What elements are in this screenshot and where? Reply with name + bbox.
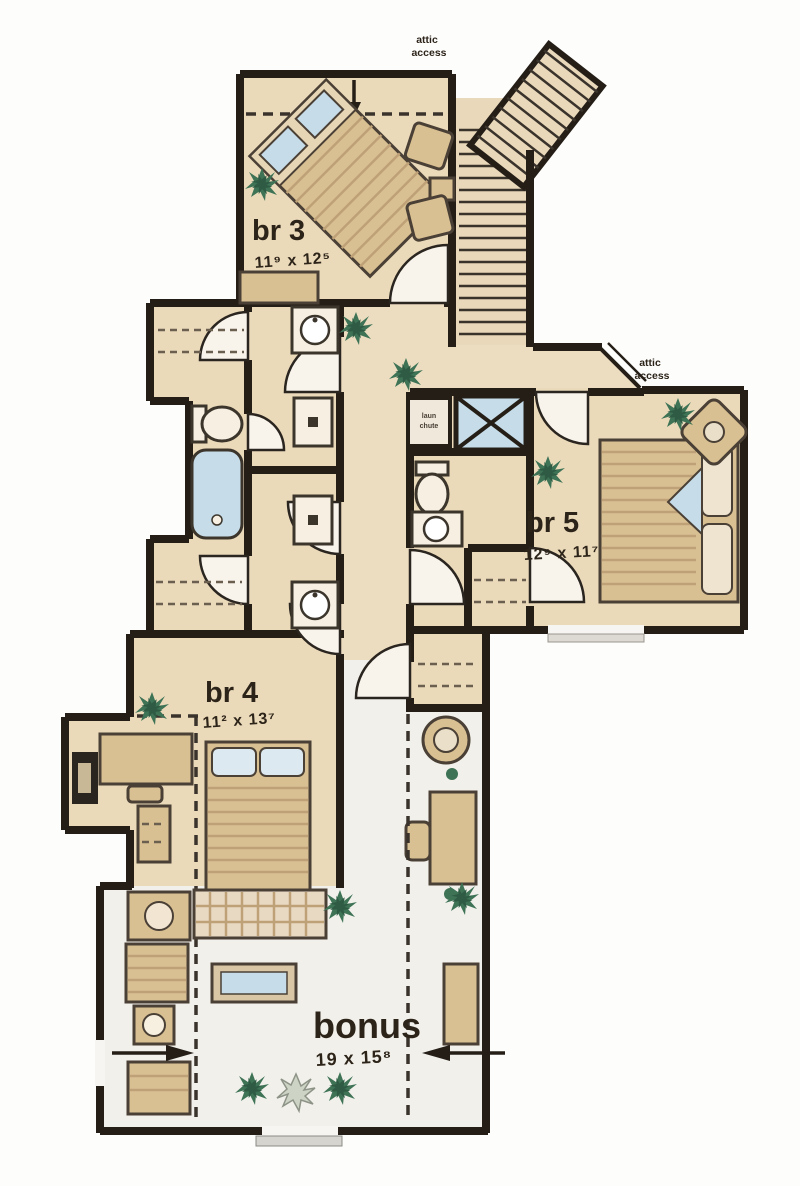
room-label-br5: br 5	[526, 507, 579, 539]
chute-label-2: chute	[420, 423, 439, 430]
lamp-table-icon	[134, 1006, 174, 1044]
linen-cabinet-icon	[294, 496, 332, 544]
pillow-icon	[212, 748, 256, 776]
pillow-icon	[702, 524, 732, 594]
attic-access-top-label-1: attic	[416, 34, 438, 46]
chair-icon	[406, 195, 454, 242]
window	[262, 1126, 338, 1136]
room-label-bonus: bonus	[313, 1005, 421, 1046]
toilet-icon	[416, 462, 448, 514]
dresser-icon	[240, 272, 318, 303]
window-sill	[548, 634, 644, 642]
linen-cabinet-icon	[294, 398, 332, 446]
window-seat	[72, 752, 98, 804]
toilet-icon	[192, 406, 242, 442]
attic-access-right-label-2: access	[634, 370, 669, 382]
room-label-br3: br 3	[252, 215, 305, 247]
vanity-sink-icon	[292, 582, 338, 628]
bed-icon	[206, 742, 310, 890]
desk-chair-icon	[128, 786, 162, 802]
window-sill	[256, 1136, 342, 1146]
laundry-chute-box: laun chute	[408, 398, 450, 446]
cabinet-icon	[444, 964, 478, 1044]
plant-icon	[446, 768, 458, 780]
desk-icon	[100, 734, 192, 784]
vanity-sink-icon	[292, 307, 338, 353]
recliner-icon	[126, 944, 188, 1002]
window	[95, 1040, 105, 1086]
desk-icon	[430, 792, 476, 884]
dresser-icon	[138, 806, 170, 862]
floor-plan-svg: br 3 11⁹ x 12⁵	[0, 0, 800, 1186]
room-dims-bonus: 19 x 15⁸	[315, 1046, 393, 1070]
coffee-table-icon	[212, 964, 296, 1002]
armchair-icon	[128, 892, 190, 940]
room-label-br4: br 4	[205, 677, 258, 709]
chute-label-1: laun	[422, 413, 436, 420]
sofa-icon	[194, 890, 326, 938]
attic-access-right-label-1: attic	[639, 357, 661, 369]
sink-icon	[412, 512, 462, 546]
attic-access-top-label-2: access	[411, 47, 446, 59]
pillow-icon	[260, 748, 304, 776]
floor-arm-closet	[410, 630, 486, 708]
round-chair-icon	[423, 717, 469, 763]
shower-icon	[456, 396, 526, 450]
floor-landing	[408, 345, 602, 392]
floor-plan-image: br 3 11⁹ x 12⁵	[0, 0, 800, 1186]
armchair-icon	[128, 1062, 190, 1114]
